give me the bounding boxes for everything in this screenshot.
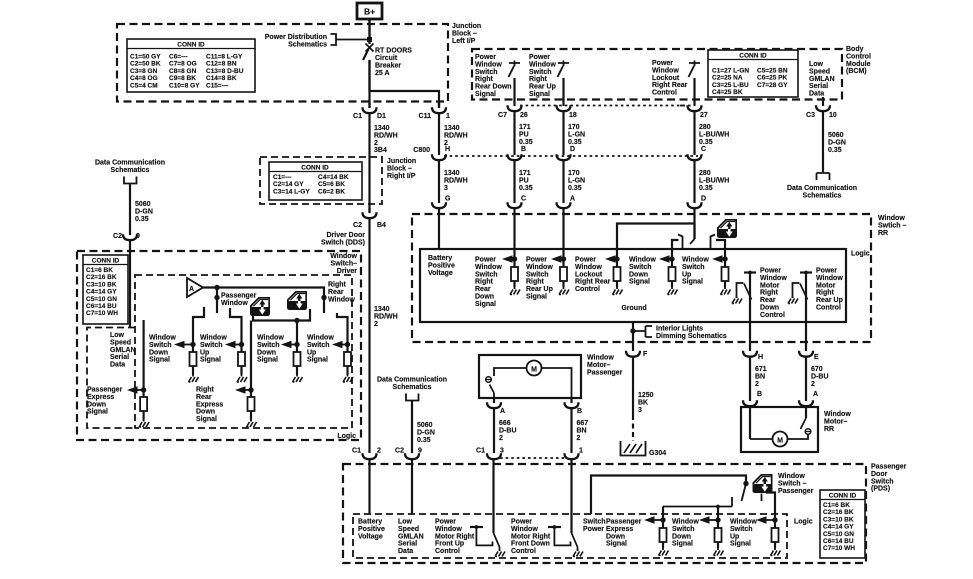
svg-text:5060: 5060 — [135, 201, 151, 208]
svg-text:667: 667 — [577, 420, 589, 427]
svg-text:D-GN: D-GN — [135, 208, 153, 215]
svg-text:L-BU/WH: L-BU/WH — [699, 131, 729, 138]
svg-text:RD/WH: RD/WH — [444, 177, 468, 184]
svg-text:D: D — [701, 196, 706, 203]
svg-text:C12=8 BN: C12=8 BN — [206, 61, 237, 68]
svg-text:M: M — [777, 438, 783, 445]
svg-text:3: 3 — [638, 407, 642, 414]
svg-text:C3=8 GN: C3=8 GN — [130, 68, 158, 75]
svg-text:CONN ID: CONN ID — [92, 258, 120, 265]
svg-text:671: 671 — [755, 366, 767, 373]
svg-text:C10=8 GY: C10=8 GY — [169, 82, 200, 89]
svg-text:F: F — [643, 351, 648, 358]
svg-text:Schematics: Schematics — [288, 41, 327, 48]
svg-text:C2: C2 — [395, 448, 404, 455]
svg-text:PU: PU — [519, 177, 529, 184]
svg-text:C11: C11 — [419, 113, 432, 120]
svg-text:Switch–: Switch– — [331, 260, 358, 267]
svg-text:C4=25 BK: C4=25 BK — [712, 89, 743, 96]
svg-text:C4=14 BK: C4=14 BK — [318, 174, 349, 181]
svg-text:C1=---: C1=--- — [273, 174, 292, 181]
svg-text:27: 27 — [700, 112, 708, 119]
svg-text:C5=4 CM: C5=4 CM — [130, 82, 158, 89]
svg-text:D-GN: D-GN — [828, 139, 846, 146]
svg-text:C7: C7 — [498, 112, 507, 119]
svg-text:C1=6 BK: C1=6 BK — [86, 267, 113, 274]
svg-text:PU: PU — [519, 131, 529, 138]
svg-text:BN: BN — [755, 373, 765, 380]
svg-text:Passenger: Passenger — [221, 293, 257, 300]
svg-text:BatteryPositiveVoltage: BatteryPositiveVoltage — [428, 255, 455, 277]
svg-text:D1: D1 — [377, 113, 386, 120]
svg-text:0.35: 0.35 — [417, 437, 431, 444]
svg-text:C: C — [701, 146, 706, 153]
svg-text:A: A — [500, 408, 505, 415]
svg-text:H: H — [758, 354, 763, 361]
svg-text:C800: C800 — [413, 147, 430, 154]
svg-text:C1=50 GY: C1=50 GY — [130, 54, 161, 61]
svg-text:Circuit: Circuit — [375, 55, 398, 62]
svg-text:RT DOORS: RT DOORS — [375, 48, 412, 55]
svg-text:5060: 5060 — [828, 132, 844, 139]
svg-text:C1=6 BK: C1=6 BK — [823, 502, 850, 509]
svg-text:Data Communication: Data Communication — [95, 160, 165, 167]
svg-text:C3=25 L-BU: C3=25 L-BU — [712, 82, 749, 89]
svg-text:C1: C1 — [476, 448, 485, 455]
svg-text:C11=8 L-GY: C11=8 L-GY — [206, 54, 243, 61]
svg-text:Logic: Logic — [851, 251, 870, 258]
svg-text:C5=6 BK: C5=6 BK — [318, 181, 345, 188]
svg-text:C3=10 BK: C3=10 BK — [86, 281, 117, 288]
svg-text:C5=25 BN: C5=25 BN — [757, 68, 788, 75]
svg-text:Ground: Ground — [621, 305, 646, 312]
svg-text:18: 18 — [569, 112, 577, 119]
svg-text:Right: Right — [328, 282, 347, 289]
svg-text:25 A: 25 A — [375, 70, 390, 77]
svg-text:SwitchPower: SwitchPower — [583, 519, 606, 533]
svg-text:C2=50 BK: C2=50 BK — [130, 61, 161, 68]
svg-text:C4=14 GY: C4=14 GY — [86, 289, 117, 296]
svg-text:C2=25 NA: C2=25 NA — [712, 75, 743, 82]
svg-text:A: A — [813, 391, 818, 398]
svg-text:1340: 1340 — [444, 125, 460, 132]
svg-text:3B4: 3B4 — [374, 147, 387, 154]
svg-text:0.35: 0.35 — [568, 139, 582, 146]
svg-text:E: E — [814, 354, 819, 361]
svg-text:2: 2 — [811, 381, 815, 388]
svg-text:C1: C1 — [352, 448, 361, 455]
svg-text:C4=14 GY: C4=14 GY — [823, 524, 854, 531]
svg-text:280: 280 — [699, 170, 711, 177]
svg-text:C3: C3 — [806, 112, 815, 119]
svg-text:C5=10 GN: C5=10 GN — [86, 296, 117, 303]
svg-text:C6=---: C6=--- — [169, 54, 188, 61]
svg-text:C1=27 L-GN: C1=27 L-GN — [712, 68, 749, 75]
svg-text:280: 280 — [699, 124, 711, 131]
svg-text:Schematics: Schematics — [111, 167, 150, 174]
svg-text:Window: Window — [328, 296, 355, 303]
svg-text:G: G — [445, 196, 451, 203]
svg-text:9: 9 — [136, 233, 140, 240]
svg-text:C14=8 BK: C14=8 BK — [206, 75, 237, 82]
svg-text:BK: BK — [638, 399, 648, 406]
svg-text:JunctionBlock –Right I/P: JunctionBlock –Right I/P — [387, 158, 416, 180]
svg-text:Window: Window — [221, 300, 248, 307]
svg-text:C5=10 GN: C5=10 GN — [823, 531, 854, 538]
svg-text:1: 1 — [446, 113, 450, 120]
svg-text:C7=10 WH: C7=10 WH — [86, 310, 118, 317]
svg-text:C2=16 BK: C2=16 BK — [823, 509, 854, 516]
svg-text:B: B — [757, 391, 762, 398]
svg-text:C1: C1 — [353, 113, 362, 120]
svg-text:M: M — [531, 367, 537, 374]
svg-text:C4=8 OG: C4=8 OG — [130, 75, 158, 82]
svg-text:D: D — [570, 146, 575, 153]
svg-text:G304: G304 — [649, 450, 666, 457]
svg-text:C7=28 GY: C7=28 GY — [757, 82, 788, 89]
svg-text:B4: B4 — [377, 222, 386, 229]
svg-text:C13=8 D-BU: C13=8 D-BU — [206, 68, 244, 75]
svg-text:2: 2 — [374, 140, 378, 147]
svg-text:RD/WH: RD/WH — [374, 313, 398, 320]
svg-text:C8=8 GN: C8=8 GN — [169, 68, 197, 75]
svg-text:B: B — [577, 408, 582, 415]
svg-text:Window: Window — [330, 253, 357, 260]
svg-text:0.35: 0.35 — [519, 185, 533, 192]
svg-text:L-BU/WH: L-BU/WH — [699, 177, 729, 184]
svg-text:BatteryPositiveVoltage: BatteryPositiveVoltage — [358, 519, 385, 541]
svg-text:A: A — [189, 286, 194, 293]
svg-text:Data Communication: Data Communication — [787, 185, 857, 192]
svg-text:5060: 5060 — [417, 422, 433, 429]
svg-text:L-GN: L-GN — [568, 177, 585, 184]
svg-text:C7=10 WH: C7=10 WH — [823, 545, 855, 552]
svg-text:C2: C2 — [353, 222, 362, 229]
svg-text:Breaker: Breaker — [375, 63, 401, 70]
svg-text:170: 170 — [568, 124, 580, 131]
svg-text:0.35: 0.35 — [699, 139, 713, 146]
svg-text:26: 26 — [520, 112, 528, 119]
svg-text:1340: 1340 — [374, 125, 390, 132]
svg-text:Data Communication: Data Communication — [377, 377, 447, 384]
svg-text:Rear: Rear — [328, 289, 344, 296]
svg-text:C2: C2 — [113, 233, 122, 240]
svg-text:2: 2 — [374, 321, 378, 328]
svg-text:CONN ID: CONN ID — [829, 493, 857, 500]
svg-text:B: B — [521, 146, 526, 153]
svg-text:Logic: Logic — [337, 433, 356, 440]
svg-text:C2=16 BK: C2=16 BK — [86, 274, 117, 281]
svg-text:0.35: 0.35 — [135, 216, 149, 223]
svg-text:Logic: Logic — [794, 519, 813, 526]
svg-text:1340: 1340 — [444, 170, 460, 177]
svg-text:0.35: 0.35 — [828, 147, 842, 154]
svg-text:171: 171 — [519, 124, 531, 131]
svg-text:C6=14 BU: C6=14 BU — [823, 538, 854, 545]
svg-text:2: 2 — [577, 435, 581, 442]
svg-text:0.35: 0.35 — [568, 185, 582, 192]
svg-text:H: H — [445, 146, 450, 153]
svg-text:0.35: 0.35 — [519, 139, 533, 146]
svg-text:Power Distribution: Power Distribution — [265, 34, 327, 41]
svg-text:L-GN: L-GN — [568, 131, 585, 138]
svg-text:1250: 1250 — [638, 392, 654, 399]
svg-text:C9=8 BK: C9=8 BK — [169, 75, 196, 82]
svg-text:CONN ID: CONN ID — [177, 42, 205, 49]
svg-text:2: 2 — [755, 381, 759, 388]
svg-text:Driver: Driver — [337, 268, 358, 275]
svg-text:C2=14 GY: C2=14 GY — [273, 181, 304, 188]
svg-text:BN: BN — [577, 427, 587, 434]
svg-text:C6=25 PK: C6=25 PK — [757, 75, 787, 82]
svg-text:C6=2 BK: C6=2 BK — [318, 188, 345, 195]
svg-text:C15=---: C15=--- — [206, 82, 228, 89]
svg-text:CONN ID: CONN ID — [301, 165, 329, 172]
svg-text:Driver Door: Driver Door — [326, 232, 365, 239]
svg-text:CONN ID: CONN ID — [739, 53, 767, 60]
svg-text:D-GN: D-GN — [417, 429, 435, 436]
svg-text:171: 171 — [519, 170, 531, 177]
svg-text:A: A — [570, 196, 575, 203]
svg-text:2: 2 — [499, 435, 503, 442]
svg-text:170: 170 — [568, 170, 580, 177]
svg-text:C3=14 L-GY: C3=14 L-GY — [273, 188, 310, 195]
svg-text:666: 666 — [499, 420, 511, 427]
svg-text:RD/WH: RD/WH — [444, 132, 468, 139]
svg-text:Switch (DDS): Switch (DDS) — [321, 239, 365, 246]
svg-text:D-BU: D-BU — [811, 373, 829, 380]
svg-text:0.35: 0.35 — [699, 185, 713, 192]
svg-text:1340: 1340 — [374, 306, 390, 313]
svg-text:D-BU: D-BU — [499, 427, 517, 434]
svg-text:C: C — [521, 196, 526, 203]
svg-text:Schematics: Schematics — [393, 384, 432, 391]
svg-text:C7=8 OG: C7=8 OG — [169, 61, 197, 68]
svg-text:Interior Lights: Interior Lights — [656, 326, 703, 333]
svg-text:RD/WH: RD/WH — [374, 132, 398, 139]
svg-text:670: 670 — [811, 366, 823, 373]
svg-text:3: 3 — [444, 185, 448, 192]
svg-text:Schematics: Schematics — [803, 192, 842, 199]
svg-text:10: 10 — [829, 112, 837, 119]
svg-text:Dimming Schematics: Dimming Schematics — [656, 333, 727, 340]
svg-text:B+: B+ — [364, 7, 375, 17]
svg-text:C6=14 BU: C6=14 BU — [86, 303, 117, 310]
svg-text:C3=10 BK: C3=10 BK — [823, 516, 854, 523]
